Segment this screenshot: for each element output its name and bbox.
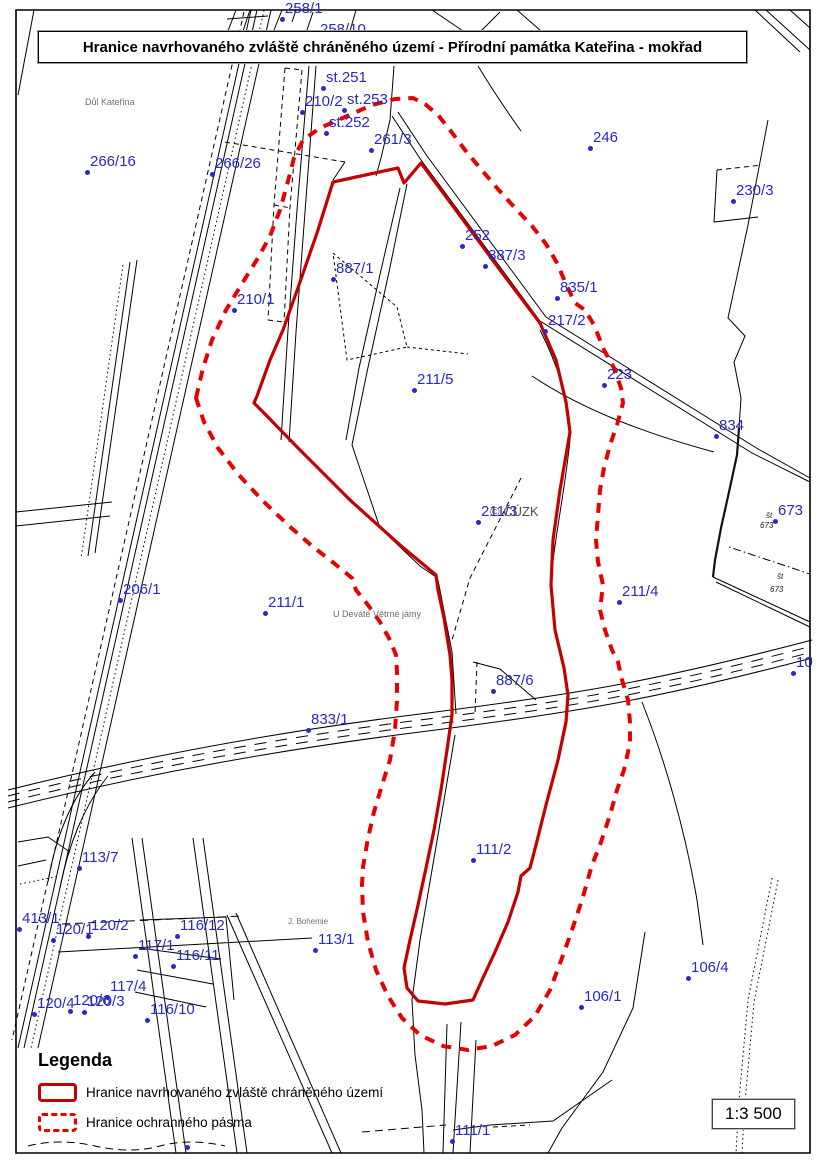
parcel-dot	[731, 199, 736, 204]
legend-item: Hranice navrhovaného zvláště chráněného …	[38, 1081, 383, 1103]
parcel-label: 211/4	[622, 583, 658, 600]
parcel-label: 116/12	[180, 917, 225, 934]
parcel-dot	[321, 86, 326, 91]
parcel-dot	[579, 1005, 584, 1010]
parcel-label: 834	[719, 417, 744, 434]
parcel-dot	[588, 146, 593, 151]
legend-heading: Legenda	[38, 1050, 383, 1071]
parcel-dot	[450, 1139, 455, 1144]
place-label: J. Bohemie	[288, 917, 328, 926]
parcel-dot	[133, 954, 138, 959]
scale-text: 1:3 500	[725, 1104, 782, 1123]
map-title: Hranice navrhovaného zvláště chráněného …	[83, 39, 702, 56]
parcel-label: 116/10	[150, 1001, 195, 1018]
parcel-label: 111/1	[455, 1122, 490, 1139]
parcel-label: 266/16	[90, 153, 136, 170]
parcel-label: 106/1	[584, 988, 622, 1005]
map-annotation: 673	[760, 521, 773, 530]
parcel-dot	[85, 170, 90, 175]
parcel-dot	[342, 108, 347, 113]
parcel-label: st.251	[326, 69, 367, 86]
parcel-dot	[412, 388, 417, 393]
parcel-dot	[175, 934, 180, 939]
parcel-dot	[210, 172, 215, 177]
parcel-dot	[324, 131, 329, 136]
parcel-dot	[171, 964, 176, 969]
legend-items: Hranice navrhovaného zvláště chráněného …	[38, 1081, 383, 1133]
parcel-dot	[686, 976, 691, 981]
parcel-dot	[185, 1145, 190, 1150]
parcel-dot	[471, 858, 476, 863]
parcel-label: 211/1	[268, 594, 304, 611]
parcel-dot	[313, 948, 318, 953]
map-annotation: št	[766, 511, 772, 520]
parcel-dot	[68, 1009, 73, 1014]
map-page: 258/1258/10st.251210/2st.253st.252261/32…	[0, 0, 826, 1170]
parcel-dot	[617, 600, 622, 605]
parcel-label: 887/1	[336, 260, 374, 277]
parcel-label: 413/1	[22, 910, 60, 927]
parcel-dot	[714, 434, 719, 439]
parcel-dot	[232, 308, 237, 313]
parcel-dot	[145, 1018, 150, 1023]
parcel-dot	[602, 383, 607, 388]
parcel-label: 120/2	[91, 917, 129, 934]
parcel-label: 211/5	[417, 371, 453, 388]
parcel-dot	[460, 244, 465, 249]
scale-box: 1:3 500	[712, 1099, 795, 1129]
parcel-dot	[476, 520, 481, 525]
parcel-dot	[82, 1010, 87, 1015]
map-annotation: 673	[770, 585, 783, 594]
parcel-label: 113/1	[318, 931, 354, 948]
parcel-label: 223	[607, 366, 632, 383]
parcel-label: 887/6	[496, 672, 534, 689]
parcel-label: 210/2	[305, 93, 343, 110]
parcel-dot	[86, 934, 91, 939]
parcel-label: 673	[778, 502, 803, 519]
parcel-label: 835/1	[560, 279, 598, 296]
parcel-label: 113/7	[82, 849, 118, 866]
parcel-label: 111/2	[476, 841, 511, 858]
parcel-label: 206/1	[123, 581, 161, 598]
parcel-label: 116/11	[176, 947, 220, 964]
legend-item: Hranice ochranného pásma	[38, 1111, 383, 1133]
parcel-dot	[491, 689, 496, 694]
map-labels: 258/1258/10st.251210/2st.253st.252261/32…	[0, 0, 826, 1170]
parcel-dot	[280, 17, 285, 22]
parcel-dot	[118, 598, 123, 603]
parcel-label: 10	[796, 654, 813, 671]
parcel-label: 246	[593, 129, 618, 146]
parcel-dot	[483, 264, 488, 269]
parcel-label: 261/3	[374, 131, 412, 148]
parcel-dot	[17, 927, 22, 932]
map-annotation: št	[777, 572, 783, 581]
legend-swatch-solid	[38, 1083, 77, 1102]
parcel-dot	[791, 671, 796, 676]
parcel-label: st.253	[347, 91, 388, 108]
parcel-label: 106/4	[691, 959, 729, 976]
parcel-dot	[32, 1012, 37, 1017]
parcel-dot	[300, 110, 305, 115]
parcel-dot	[306, 728, 311, 733]
parcel-dot	[369, 148, 374, 153]
parcel-label: st.252	[329, 114, 370, 131]
parcel-label: 120/3	[87, 993, 125, 1010]
parcel-dot	[331, 277, 336, 282]
parcel-label: 230/3	[736, 182, 774, 199]
parcel-label: 833/1	[311, 711, 349, 728]
place-label: Důl Kateřina	[85, 97, 135, 107]
parcel-label: 117/1	[138, 937, 174, 954]
copyright-label: © ČÚZK	[490, 504, 539, 519]
parcel-dot	[77, 866, 82, 871]
legend-swatch-dashed	[38, 1113, 77, 1132]
parcel-label: 258/1	[285, 0, 323, 17]
map-title-box: Hranice navrhovaného zvláště chráněného …	[38, 31, 747, 63]
parcel-dot	[543, 329, 548, 334]
legend-item-label: Hranice ochranného pásma	[86, 1115, 252, 1130]
parcel-label: 210/1	[237, 291, 275, 308]
parcel-label: 887/3	[488, 247, 526, 264]
parcel-dot	[555, 296, 560, 301]
parcel-label: 217/2	[548, 312, 586, 329]
parcel-dot	[51, 938, 56, 943]
parcel-label: 266/26	[215, 155, 261, 172]
place-label: U Deváté Větrné jámy	[333, 609, 421, 619]
legend: Legenda Hranice navrhovaného zvláště chr…	[38, 1050, 383, 1141]
parcel-label: 252	[465, 227, 490, 244]
parcel-dot	[263, 611, 268, 616]
legend-item-label: Hranice navrhovaného zvláště chráněného …	[86, 1085, 383, 1100]
